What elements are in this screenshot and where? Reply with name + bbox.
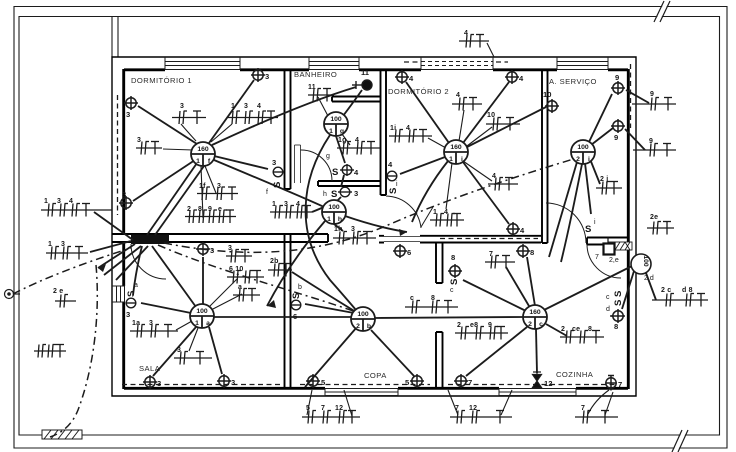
svg-text:6: 6 <box>407 248 411 257</box>
svg-text:100: 100 <box>642 255 649 267</box>
svg-text:i: i <box>588 156 590 163</box>
svg-text:b: b <box>367 323 371 330</box>
svg-text:S: S <box>613 291 624 297</box>
svg-text:7: 7 <box>468 378 472 387</box>
svg-text:3: 3 <box>126 110 130 119</box>
svg-text:1g: 1g <box>338 137 347 144</box>
svg-text:4: 4 <box>296 201 300 208</box>
svg-text:3: 3 <box>231 378 235 387</box>
svg-text:f: f <box>266 189 268 196</box>
svg-text:1i: 1i <box>390 125 396 132</box>
svg-text:1: 1 <box>195 320 199 327</box>
svg-text:3: 3 <box>177 347 181 354</box>
svg-text:c: c <box>606 294 610 301</box>
svg-text:10: 10 <box>487 112 495 119</box>
svg-text:100: 100 <box>328 204 340 211</box>
svg-text:d 8: d 8 <box>682 287 693 294</box>
svg-text:12: 12 <box>544 379 552 388</box>
svg-text:12: 12 <box>335 405 343 412</box>
svg-text:8: 8 <box>614 322 618 331</box>
svg-text:g: g <box>340 128 344 135</box>
svg-text:S: S <box>449 279 460 285</box>
svg-text:S: S <box>613 300 624 306</box>
svg-text:160: 160 <box>197 146 209 153</box>
svg-text:2: 2 <box>187 206 191 213</box>
svg-text:3: 3 <box>228 245 232 252</box>
svg-text:a: a <box>206 320 210 327</box>
svg-text:5: 5 <box>321 378 326 387</box>
svg-text:160: 160 <box>450 144 462 151</box>
svg-text:7: 7 <box>489 251 493 258</box>
svg-text:S: S <box>272 182 283 188</box>
svg-text:9: 9 <box>650 91 654 98</box>
svg-text:4: 4 <box>492 173 496 180</box>
svg-text:3: 3 <box>217 183 221 190</box>
svg-text:10: 10 <box>543 90 551 99</box>
svg-text:3: 3 <box>284 201 288 208</box>
svg-text:S: S <box>332 167 338 178</box>
svg-text:4: 4 <box>456 92 460 99</box>
svg-text:9: 9 <box>649 138 653 145</box>
svg-text:b: b <box>298 284 302 291</box>
svg-text:e: e <box>218 206 222 213</box>
svg-text:c: c <box>410 295 414 302</box>
svg-text:2 e: 2 e <box>53 288 63 295</box>
svg-text:2: 2 <box>576 156 580 163</box>
svg-text:1: 1 <box>449 156 453 163</box>
svg-text:6: 6 <box>293 312 297 321</box>
svg-text:S: S <box>331 189 337 200</box>
svg-text:S: S <box>585 224 591 235</box>
svg-text:4: 4 <box>464 30 468 37</box>
svg-text:2,d: 2,d <box>644 275 654 282</box>
svg-text:9: 9 <box>488 322 492 329</box>
svg-text:9: 9 <box>614 133 618 142</box>
svg-text:100: 100 <box>357 311 369 318</box>
svg-text:2b: 2b <box>270 258 279 265</box>
svg-text:2: 2 <box>457 322 461 329</box>
svg-text:8: 8 <box>451 253 455 262</box>
svg-text:3: 3 <box>57 198 61 205</box>
svg-text:A. SERVIÇO: A. SERVIÇO <box>549 77 597 86</box>
svg-text:3: 3 <box>210 246 214 255</box>
svg-text:1: 1 <box>433 209 437 216</box>
svg-text:3: 3 <box>351 226 355 233</box>
svg-text:a: a <box>134 282 138 289</box>
svg-text:2: 2 <box>561 326 565 333</box>
svg-text:h: h <box>323 191 327 198</box>
svg-text:1: 1 <box>196 158 200 165</box>
svg-text:7: 7 <box>595 254 599 261</box>
svg-text:S: S <box>291 293 302 299</box>
svg-text:5: 5 <box>405 378 410 387</box>
svg-text:1h: 1h <box>334 226 343 233</box>
svg-text:7: 7 <box>321 405 325 412</box>
svg-text:2: 2 <box>528 321 532 328</box>
svg-text:2: 2 <box>356 323 360 330</box>
svg-text:e8: e8 <box>470 322 478 329</box>
svg-text:3: 3 <box>149 320 153 327</box>
svg-text:12: 12 <box>469 405 477 412</box>
svg-text:100: 100 <box>196 308 208 315</box>
svg-text:c: c <box>539 321 543 328</box>
svg-text:2 j: 2 j <box>600 176 608 183</box>
svg-text:7: 7 <box>618 380 622 389</box>
svg-text:8: 8 <box>431 295 435 302</box>
svg-text:3: 3 <box>354 189 358 198</box>
svg-text:3: 3 <box>272 158 276 167</box>
svg-text:9: 9 <box>208 206 212 213</box>
svg-text:4: 4 <box>406 125 410 132</box>
svg-text:5: 5 <box>306 405 310 412</box>
svg-text:4: 4 <box>520 226 525 235</box>
svg-text:100: 100 <box>577 144 589 151</box>
svg-text:1: 1 <box>48 241 52 248</box>
svg-text:S: S <box>388 188 399 194</box>
svg-text:3: 3 <box>126 310 130 319</box>
svg-text:1: 1 <box>231 103 235 110</box>
svg-text:a: a <box>238 284 242 291</box>
svg-text:c: c <box>450 287 454 294</box>
svg-text:4: 4 <box>69 198 73 205</box>
svg-text:3: 3 <box>265 72 269 81</box>
svg-text:1: 1 <box>329 128 333 135</box>
svg-text:4: 4 <box>444 209 448 216</box>
svg-text:3: 3 <box>137 137 141 144</box>
svg-text:11: 11 <box>361 68 370 77</box>
svg-text:2e: 2e <box>650 214 658 221</box>
svg-text:COPA: COPA <box>364 371 387 380</box>
svg-text:COZINHA: COZINHA <box>556 370 594 379</box>
svg-text:g: g <box>326 153 330 160</box>
svg-text:7: 7 <box>455 405 459 412</box>
svg-text:100: 100 <box>330 116 342 123</box>
svg-text:3: 3 <box>244 103 248 110</box>
svg-text:7: 7 <box>581 405 585 412</box>
svg-text:i: i <box>396 181 398 188</box>
svg-text:3: 3 <box>61 241 65 248</box>
svg-text:h: h <box>338 216 342 223</box>
svg-text:2,e: 2,e <box>609 257 619 264</box>
svg-text:4: 4 <box>355 137 359 144</box>
svg-text:1: 1 <box>327 216 331 223</box>
svg-text:DORMITÓRIO 1: DORMITÓRIO 1 <box>131 76 192 85</box>
svg-text:9: 9 <box>615 73 619 82</box>
svg-text:DORMITÓRIO 2: DORMITÓRIO 2 <box>388 87 449 96</box>
svg-text:4: 4 <box>354 168 359 177</box>
svg-text:1f: 1f <box>199 183 206 190</box>
svg-text:8: 8 <box>588 326 592 333</box>
svg-text:4: 4 <box>409 74 414 83</box>
svg-text:160: 160 <box>529 309 541 316</box>
svg-text:i: i <box>594 219 596 226</box>
svg-text:1a: 1a <box>132 320 140 327</box>
svg-text:BANHEIRO: BANHEIRO <box>294 70 337 79</box>
svg-text:S: S <box>126 291 137 297</box>
svg-text:2 c: 2 c <box>661 287 671 294</box>
svg-text:d: d <box>606 306 610 313</box>
svg-text:3: 3 <box>180 103 184 110</box>
svg-text:i: i <box>461 156 463 163</box>
svg-text:8: 8 <box>198 206 202 213</box>
svg-text:11: 11 <box>308 84 316 91</box>
svg-text:4: 4 <box>388 160 393 169</box>
svg-text:3: 3 <box>157 379 161 388</box>
svg-text:4: 4 <box>519 74 524 83</box>
svg-text:1: 1 <box>44 198 48 205</box>
svg-text:6 10: 6 10 <box>229 266 243 273</box>
svg-text:ce: ce <box>572 326 580 333</box>
svg-text:3: 3 <box>122 190 126 199</box>
svg-text:1: 1 <box>272 201 276 208</box>
svg-text:4: 4 <box>257 103 261 110</box>
svg-text:8: 8 <box>530 248 534 257</box>
